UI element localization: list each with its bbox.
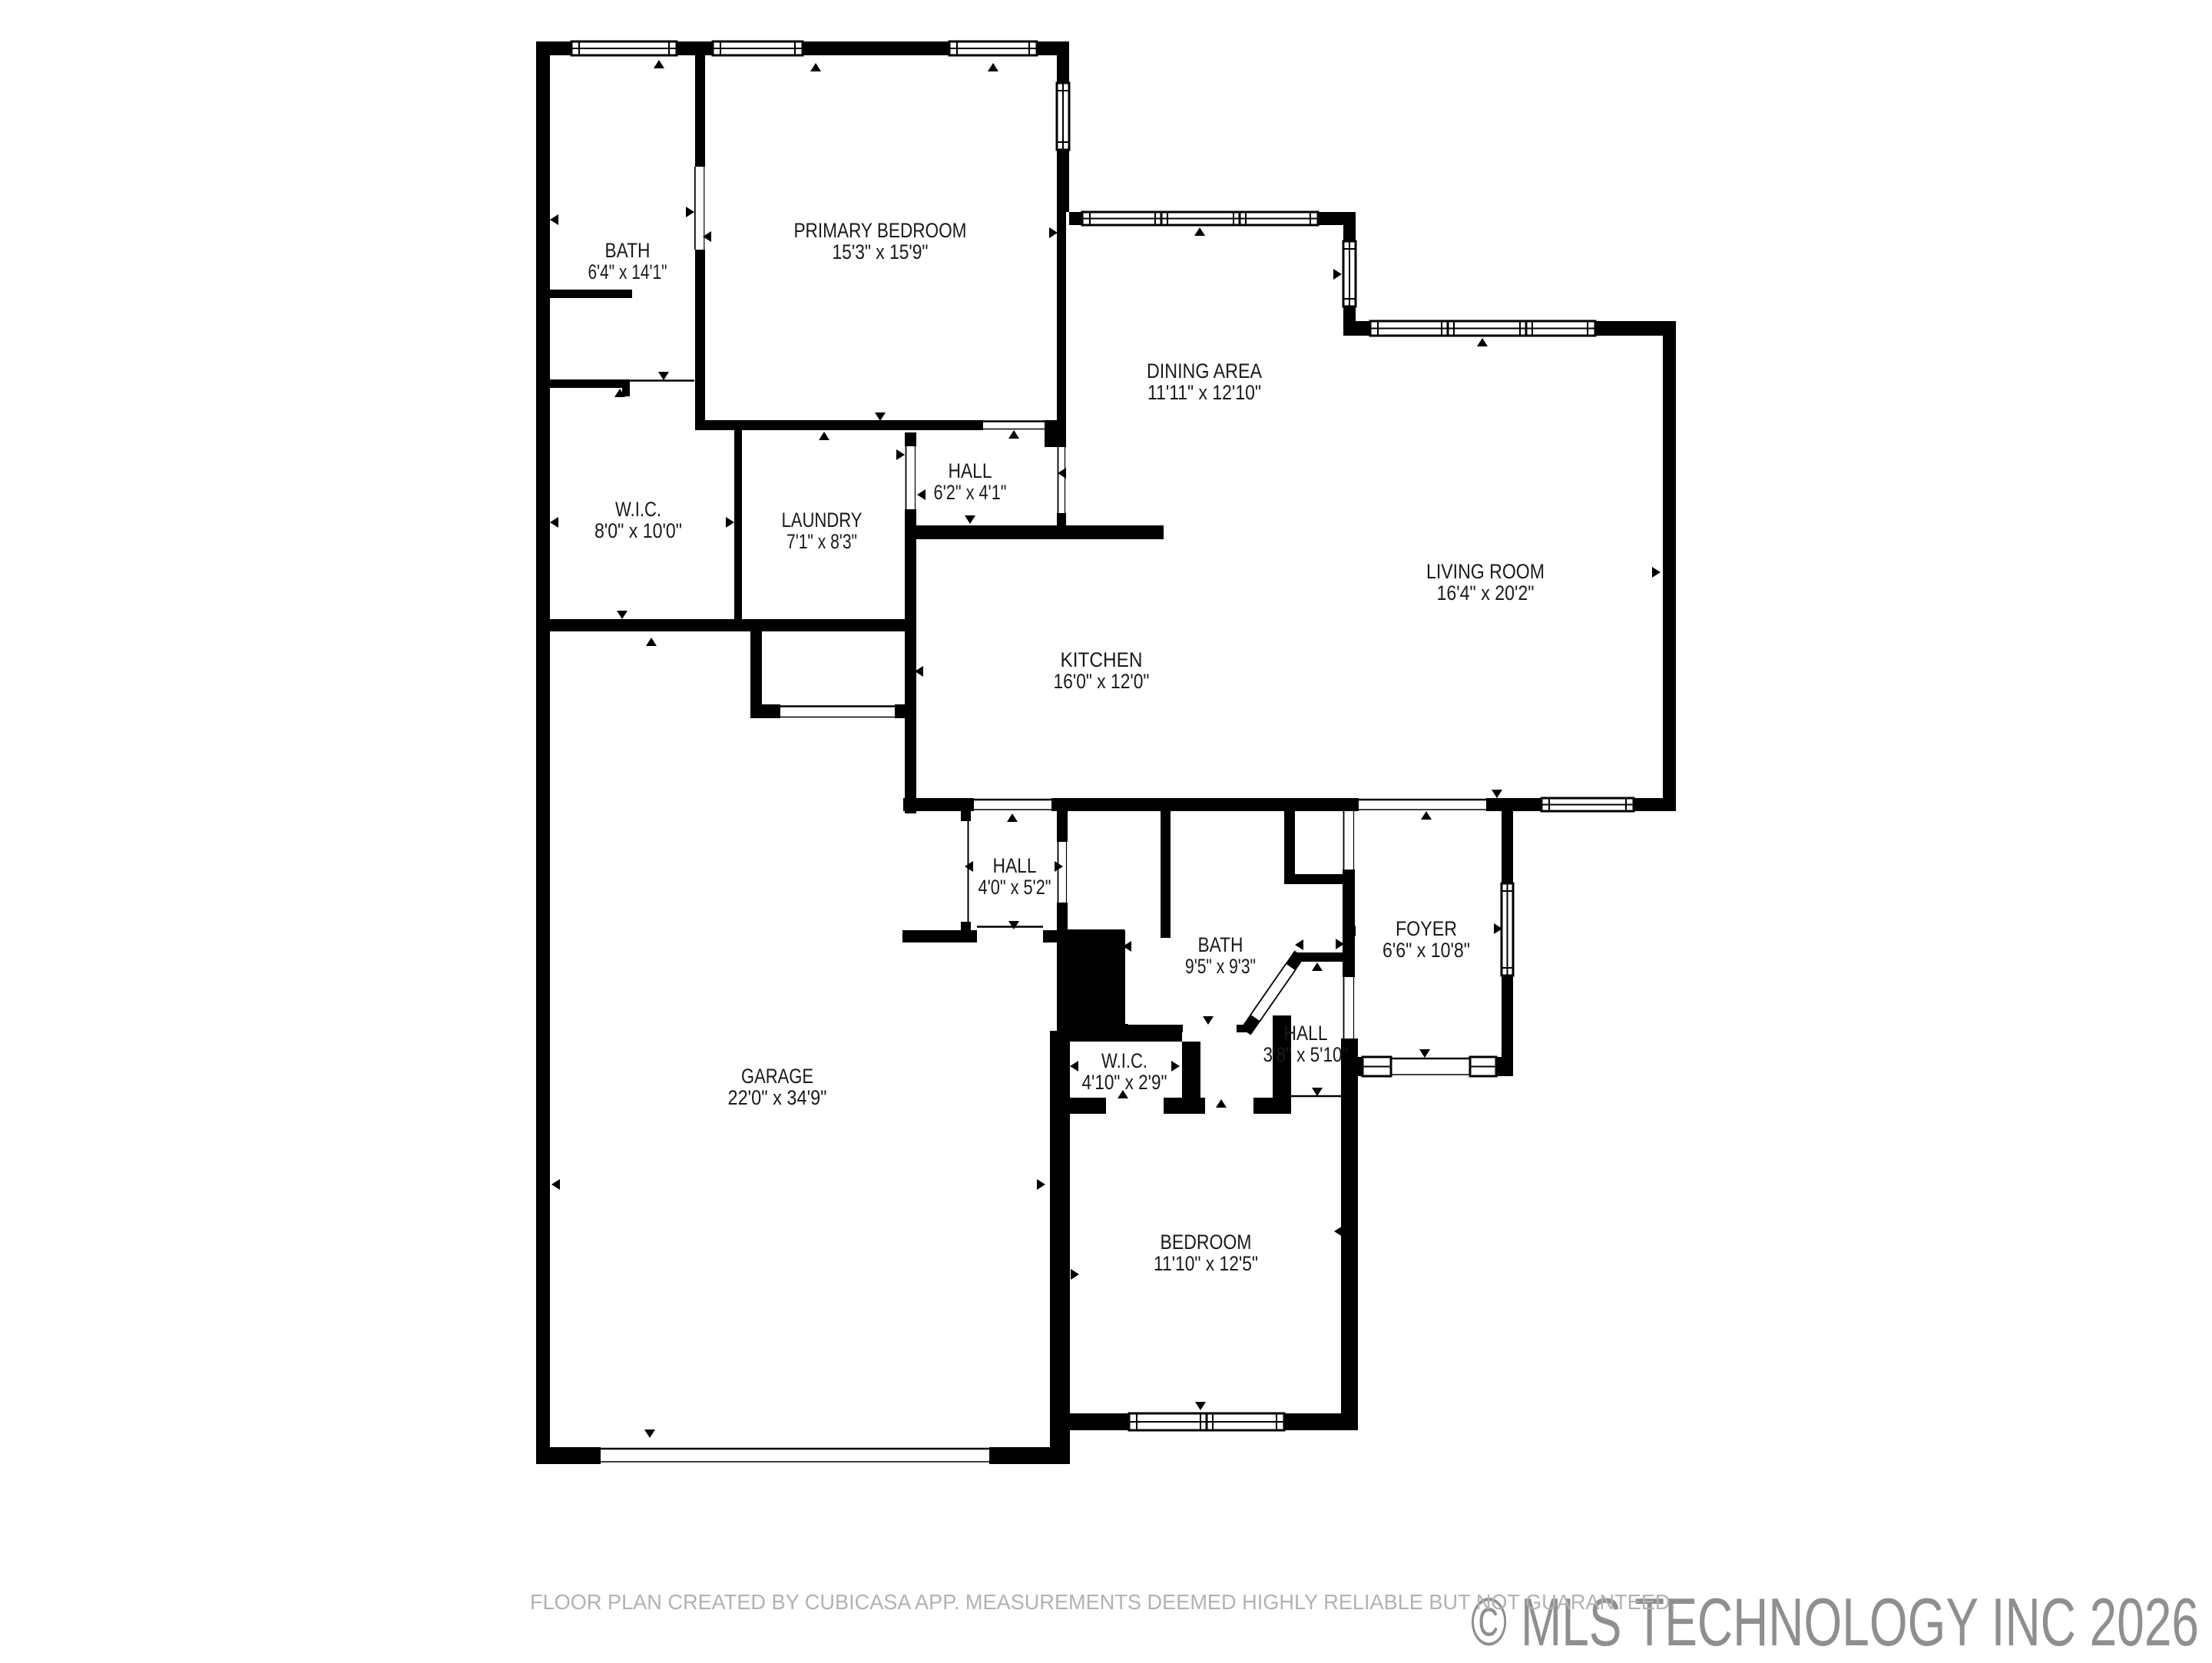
- svg-text:W.I.C.: W.I.C.: [1101, 1049, 1147, 1072]
- svg-text:BATH: BATH: [605, 239, 651, 262]
- svg-text:16'0" x 12'0": 16'0" x 12'0": [1054, 670, 1150, 693]
- svg-text:HALL: HALL: [993, 854, 1037, 877]
- svg-text:DINING AREA: DINING AREA: [1147, 359, 1262, 383]
- svg-text:LIVING ROOM: LIVING ROOM: [1426, 560, 1545, 583]
- svg-text:4'10" x 2'9": 4'10" x 2'9": [1082, 1071, 1167, 1094]
- svg-text:9'5" x 9'3": 9'5" x 9'3": [1185, 955, 1256, 978]
- svg-text:15'3" x 15'9": 15'3" x 15'9": [833, 240, 929, 263]
- svg-text:3'8" x 5'10": 3'8" x 5'10": [1263, 1043, 1349, 1066]
- svg-text:FOYER: FOYER: [1396, 917, 1457, 940]
- svg-text:FLOOR PLAN CREATED BY CUBICASA: FLOOR PLAN CREATED BY CUBICASA APP. MEAS…: [530, 1590, 1676, 1614]
- svg-text:W.I.C.: W.I.C.: [615, 498, 661, 521]
- svg-text:GARAGE: GARAGE: [741, 1065, 813, 1088]
- svg-text:HALL: HALL: [1284, 1022, 1328, 1045]
- svg-text:PRIMARY BEDROOM: PRIMARY BEDROOM: [794, 219, 967, 242]
- svg-text:6'6" x 10'8": 6'6" x 10'8": [1382, 939, 1470, 962]
- svg-text:BEDROOM: BEDROOM: [1161, 1231, 1252, 1254]
- svg-text:7'1" x 8'3": 7'1" x 8'3": [786, 530, 857, 553]
- svg-text:6'2" x 4'1": 6'2" x 4'1": [934, 481, 1007, 504]
- svg-text:22'0" x 34'9": 22'0" x 34'9": [728, 1086, 827, 1109]
- svg-text:11'10" x 12'5": 11'10" x 12'5": [1154, 1252, 1258, 1275]
- svg-text:BATH: BATH: [1198, 933, 1243, 956]
- svg-text:8'0" x 10'0": 8'0" x 10'0": [594, 519, 682, 542]
- svg-text:6'4" x 14'1": 6'4" x 14'1": [588, 260, 667, 283]
- svg-text:KITCHEN: KITCHEN: [1061, 648, 1143, 671]
- svg-text:LAUNDRY: LAUNDRY: [782, 509, 863, 532]
- svg-text:4'0" x 5'2": 4'0" x 5'2": [979, 876, 1051, 899]
- svg-text:16'4" x 20'2": 16'4" x 20'2": [1437, 581, 1535, 605]
- svg-text:HALL: HALL: [949, 459, 992, 482]
- svg-text:11'11" x 12'10": 11'11" x 12'10": [1147, 381, 1261, 404]
